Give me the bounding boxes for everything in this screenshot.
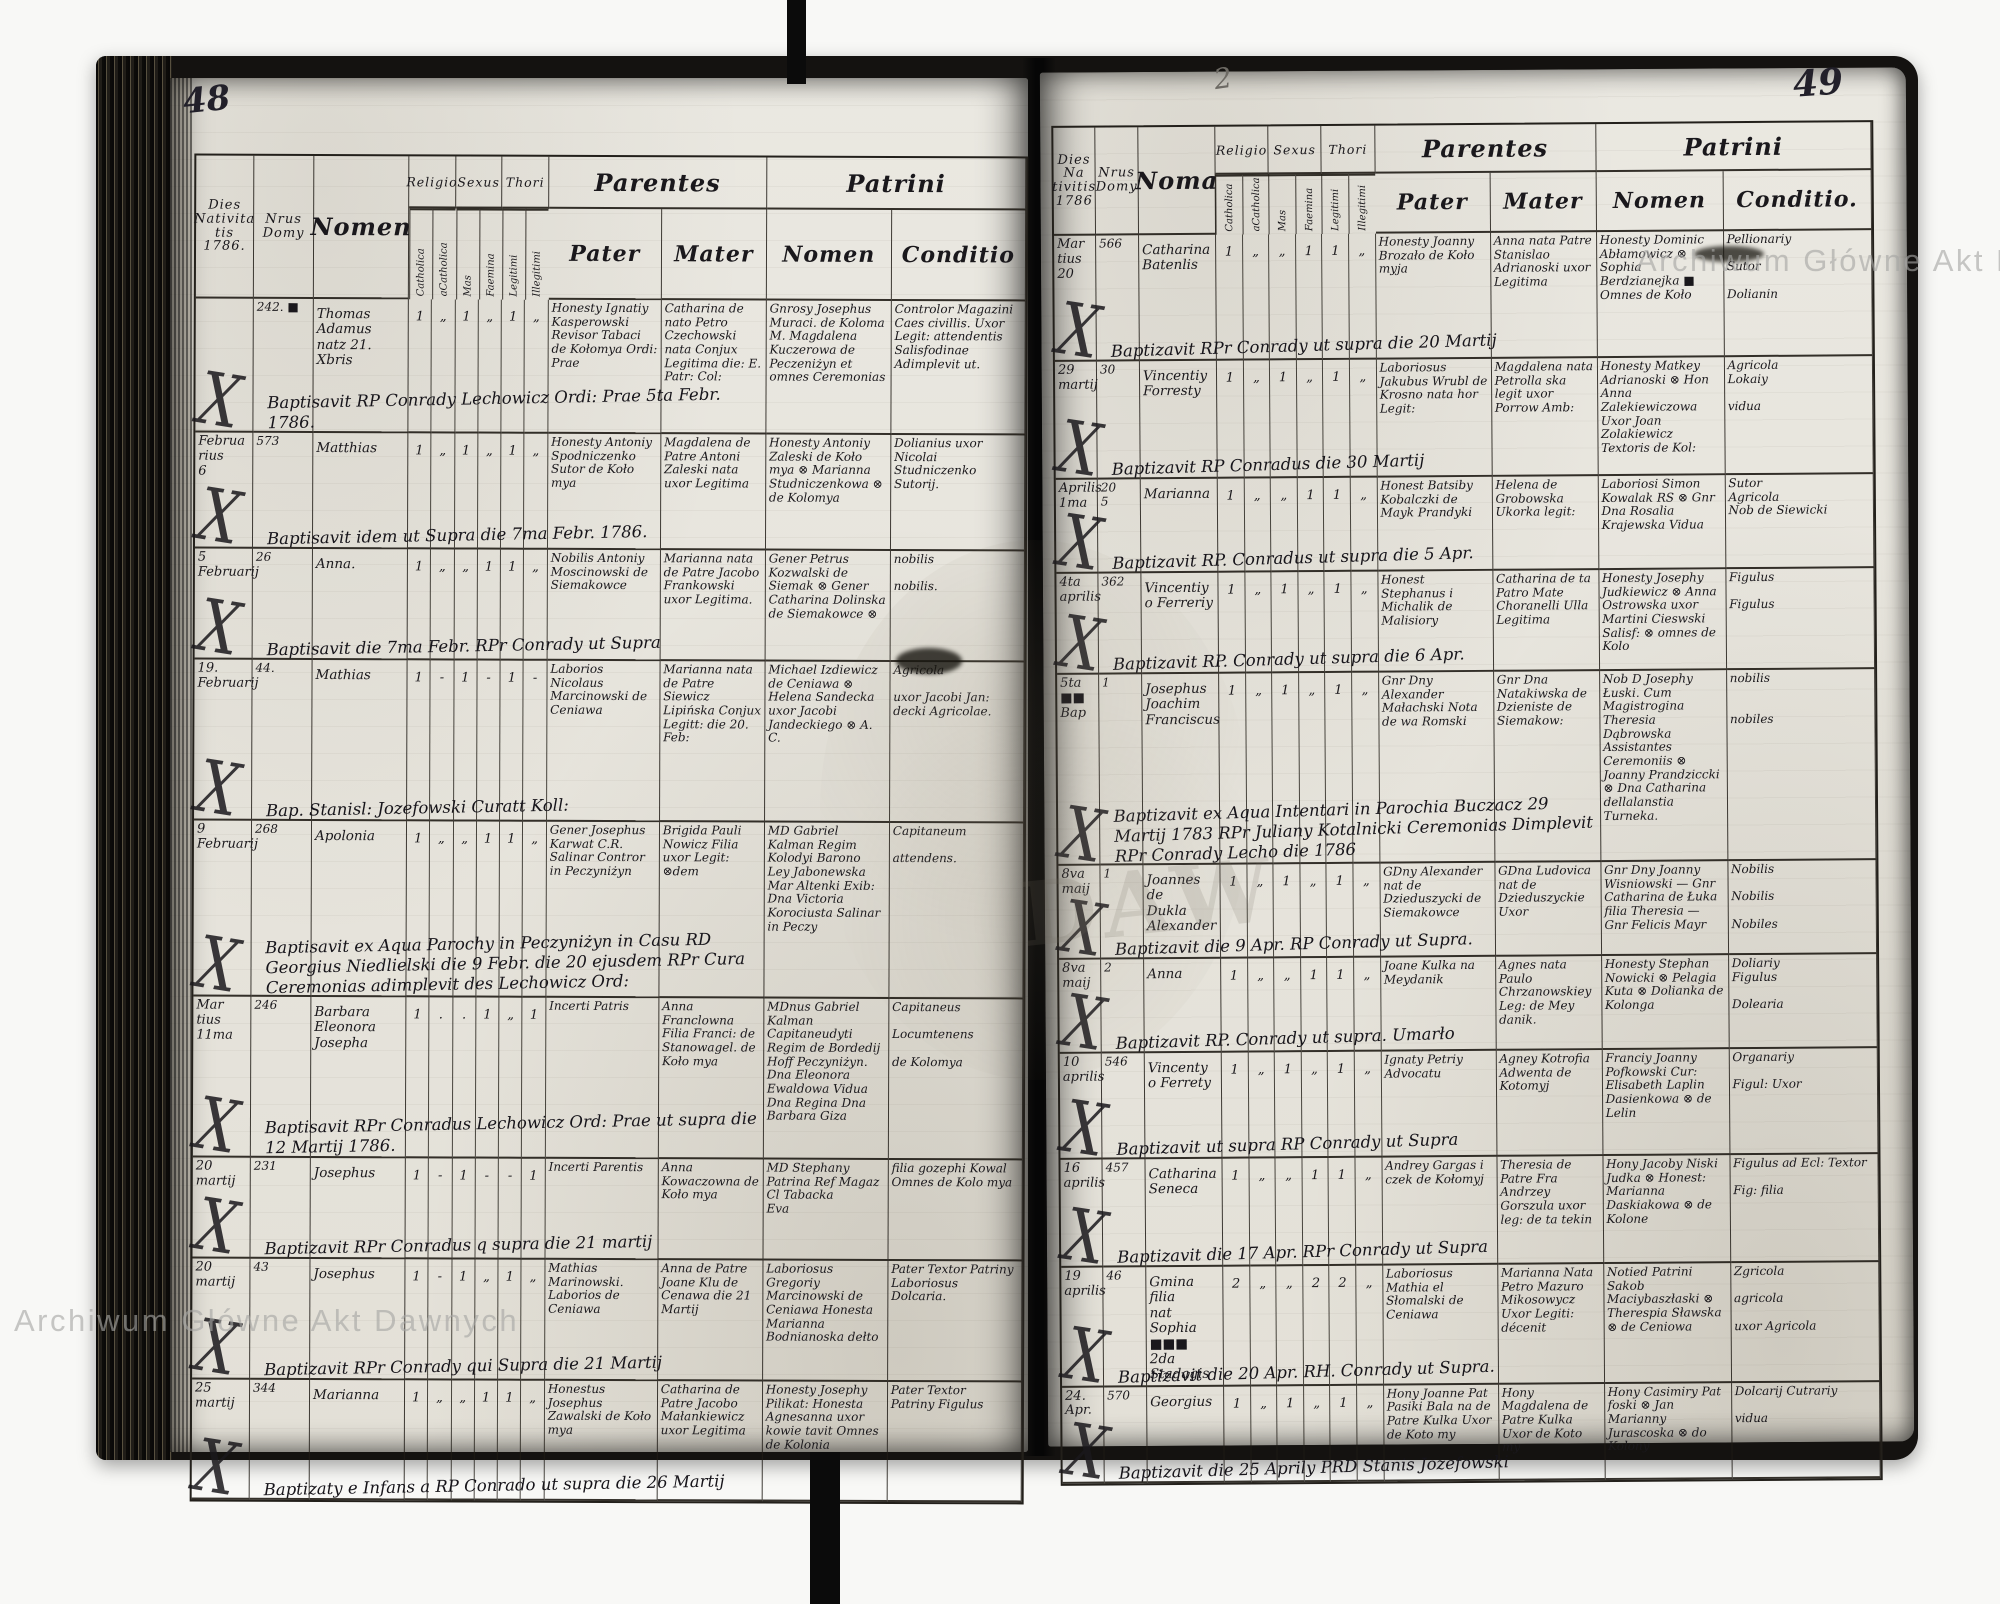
record-name: Mathias — [312, 660, 408, 821]
record-tick-5: „ — [524, 550, 548, 661]
record-dies: 5 FebruarijX — [195, 549, 253, 660]
record-tick-4: 1 — [500, 661, 524, 822]
record-patrini-nomen: Honesty Stephan Nowicki ⊗ Pelagia Kuta ⊗… — [1602, 955, 1730, 1050]
record-house-number: 546 — [1102, 1053, 1146, 1159]
header-conditio: Conditio — [892, 210, 1027, 301]
record-mater: Gnr Dna Natakiwska de Dzieniste de Siema… — [1494, 671, 1601, 863]
record-tick-1: - — [430, 660, 454, 821]
record-tick-4: - — [499, 1159, 523, 1260]
record-patrini-conditio: Dolianius uxor Nicolai Studniczenko Suto… — [891, 435, 1026, 551]
header-nomen: Noma — [1138, 127, 1216, 236]
check-x-mark: X — [1061, 1420, 1105, 1488]
check-x-mark: X — [192, 932, 252, 1002]
record-tick-2: „ — [451, 1380, 475, 1500]
record-tick-5: „ — [1354, 958, 1381, 1052]
record-patrini-conditio: Agricola Lokaiy vidua — [1724, 356, 1873, 475]
check-x-mark: X — [191, 1093, 251, 1163]
record-mater: Anna Franclowna Filia Franci: de Stanowa… — [659, 998, 765, 1159]
record-tick-2: 1 — [1272, 673, 1300, 864]
record-mater: Magdalena de Patre Antoni Zaleski nata u… — [661, 434, 766, 550]
check-x-mark: X — [1054, 417, 1098, 485]
record-pater: Gnr Dny Alexander Małachski Nota de wa R… — [1379, 672, 1495, 864]
record-dies: 20 martijX — [192, 1158, 250, 1259]
record-dies: 19. FebruarijX — [194, 660, 253, 821]
record-patrini-conditio: Controlor Magazini Caes civillis. Uxor L… — [891, 301, 1026, 435]
header-pater: Pater — [1375, 173, 1490, 234]
record-tick-5: „ — [523, 822, 547, 998]
record-pater: Laborios Nicolaus Marcinowski de Ceniawa — [547, 661, 661, 822]
record-mater: Anna Kowaczowna de Koło mya — [658, 1159, 763, 1260]
record-tick-2: „ — [1276, 1158, 1303, 1266]
record-tick-3: - — [477, 661, 501, 822]
ink-smudge — [896, 648, 962, 674]
record-name: Vincentiy Forresty — [1140, 361, 1218, 480]
record-tick-1: „ — [1243, 234, 1270, 360]
record-patrini-nomen: Hony Jacoby Niski Judka ⊗ Honest: Marian… — [1603, 1155, 1731, 1264]
record-patrini-conditio: Doliariy Figulus Dolearia — [1729, 954, 1878, 1049]
record-tick-4: 1 — [1329, 1158, 1356, 1266]
record-tick-0: 1 — [408, 433, 432, 549]
record-tick-2: „ — [1274, 958, 1301, 1052]
record-tick-2: 1 — [454, 660, 478, 821]
archive-watermark-bottom: Archiwum Główne Akt Dawnych — [14, 1303, 519, 1339]
record-mater: Brigida Pauli Nowicz Filia uxor Legit: ⊗… — [659, 822, 765, 998]
record-tick-1: „ — [431, 433, 455, 549]
record-mater: Hony Magdalena de Patre Kulka Uxor de Ko… — [1499, 1384, 1606, 1481]
record-patrini-nomen: Hony Casimiry Pat foski ⊗ Jan Marianny J… — [1605, 1383, 1733, 1480]
record-tick-0: 1 — [1218, 573, 1245, 674]
header-sub-3: Faemina — [479, 209, 503, 300]
record-tick-0: 1 — [405, 1158, 429, 1259]
header-patrini-nomen: Nomen — [1596, 171, 1723, 232]
record-pater: Honesty Antoniy Spodniczenko Sutor de Ko… — [548, 434, 661, 550]
record-tick-5: - — [524, 661, 548, 822]
record-tick-2: 1 — [455, 433, 479, 549]
record-mater: Catharina de ta Patro Mate Choranelli Ul… — [1493, 570, 1600, 672]
record-tick-1: „ — [1244, 360, 1271, 478]
record-house-number: 573 — [253, 433, 313, 549]
record-pater: Nobilis Antoniy Moscinowski de Siemakowc… — [547, 550, 660, 661]
record-tick-4: 2 — [1330, 1266, 1357, 1386]
record-tick-3: 1 — [1298, 478, 1325, 572]
record-tick-5: „ — [1355, 1158, 1382, 1266]
record-house-number: 231 — [250, 1158, 310, 1259]
record-pater: Honesty Joanny Brozało de Koło myja — [1376, 233, 1492, 360]
record-tick-3: „ — [478, 300, 502, 434]
record-tick-3: „ — [1298, 572, 1325, 673]
record-tick-3: 1 — [1302, 1158, 1329, 1266]
check-x-mark: X — [194, 368, 254, 438]
record-date: 19 aprilis — [1064, 1270, 1099, 1300]
record-tick-1: „ — [1248, 1052, 1275, 1158]
record-pater: GDny Alexander nat de Dzieduszycki de Si… — [1380, 863, 1496, 958]
record-tick-3: „ — [478, 434, 502, 550]
record-pater: Honest Stephanus i Michalik de Malisiory — [1378, 571, 1494, 673]
record-house-number: 268 — [251, 821, 312, 997]
record-pater: Laboriosus Mathia el Słomalski de Ceniaw… — [1383, 1265, 1499, 1385]
record-patrini-nomen: MD Stephany Patrina Ref Magaz Cl Tabacka… — [763, 1160, 888, 1261]
record-pater: Incerti Parentis — [545, 1159, 658, 1260]
record-mater: Helena de Grobowska Ukorka legit: — [1492, 476, 1599, 571]
header-dies: Dies Nativita tis 1786. — [196, 156, 254, 299]
record-tick-4: 1 — [501, 434, 525, 550]
record-tick-4: 1 — [502, 300, 526, 434]
record-tick-0: 2 — [1223, 1267, 1250, 1387]
record-tick-1: „ — [1246, 673, 1274, 864]
header-thori: Thori — [502, 157, 549, 209]
record-pater: Andrey Gargas i czek de Kołomyj — [1382, 1157, 1498, 1266]
record-name: Marianna — [1141, 479, 1219, 574]
record-name: Matthias — [313, 433, 408, 549]
page-number-left: 48 — [181, 78, 232, 123]
record-patrini-nomen: Notied Patrini Sakob Maciybaszłaski ⊗ Th… — [1604, 1263, 1732, 1384]
record-tick-1: . — [429, 997, 453, 1158]
header-sub-3: Faemina — [1295, 174, 1322, 234]
bookmark-ribbon-top — [787, 0, 806, 84]
header-sub-0: Catholica — [409, 208, 433, 299]
record-tick-5: „ — [521, 1381, 545, 1501]
record-patrini-nomen: Gnr Dny Joanny Wisniowski — Gnr Catharin… — [1601, 861, 1729, 956]
record-tick-3: „ — [1302, 1052, 1329, 1158]
record-mater: Agnes nata Paulo Chrzanowskiey Leg: de M… — [1496, 956, 1603, 1051]
record-dies: Februa rius 6X — [195, 433, 253, 549]
record-name: Barbara Eleonora Josepha — [311, 997, 407, 1158]
record-tick-4: 1 — [1327, 864, 1354, 958]
header-sexus: Sexus — [456, 156, 503, 208]
header-pater: Pater — [549, 209, 662, 300]
record-name: Catharina Seneca — [1145, 1159, 1223, 1268]
record-dies: 25 martijX — [192, 1380, 250, 1500]
record-mater: Anna nata Patre Stanislao Adrianoski uxo… — [1491, 232, 1598, 359]
record-tick-4: 1 — [1327, 958, 1354, 1052]
record-house-number: 46 — [1103, 1267, 1147, 1387]
header-parentes: Parentes — [549, 157, 767, 210]
record-patrini-conditio: Dolcarij Cutrariy vidua — [1732, 1382, 1881, 1479]
record-patrini-nomen: Franciy Joanny Pofkowski Cur: Elisabeth … — [1602, 1049, 1730, 1156]
record-dies: Mar tius 11maX — [193, 997, 252, 1158]
record-name: Georgius — [1147, 1386, 1225, 1483]
record-tick-3: 1 — [476, 998, 500, 1159]
record-tick-1: „ — [1250, 1266, 1277, 1386]
record-tick-2: 1 — [452, 1158, 476, 1259]
record-patrini-conditio: Pater Textor Patriny Laboriosus Dolcaria… — [888, 1261, 1023, 1382]
record-tick-5: „ — [1351, 478, 1378, 572]
header-conditio: Conditio. — [1723, 170, 1872, 231]
header-sub-2: Mas — [455, 208, 479, 299]
record-mater: Catharina de Patre Jacobo Małankiewicz u… — [657, 1381, 762, 1501]
record-date: 25 martij — [195, 1382, 246, 1412]
record-mater: Theresia de Patre Fra Andrzey Gorszula u… — [1497, 1156, 1604, 1265]
record-tick-2: „ — [1276, 1266, 1303, 1386]
header-nrus: Nrus Domy — [1095, 127, 1139, 235]
record-patrini-conditio: nobilis nobiles — [1727, 669, 1877, 861]
record-tick-4: 1 — [498, 1381, 522, 1501]
header-sub-5: Illegitimi — [525, 209, 549, 300]
record-date: 20 martij — [195, 1261, 246, 1291]
record-mater: Agney Kotrofia Adwenta de Kotomyj — [1496, 1050, 1603, 1157]
record-tick-5: „ — [524, 434, 548, 550]
record-tick-5: 1 — [522, 1159, 546, 1260]
record-name: Thomas Adamus natz 21. Xbris — [313, 299, 408, 433]
header-religio: Religio — [1215, 126, 1269, 174]
record-date: 19. Februarij — [197, 662, 248, 692]
record-mater: Magdalena nata Petrolla ska legit uxor P… — [1491, 358, 1598, 477]
check-x-mark: X — [1060, 1324, 1104, 1392]
record-date: 9 Februarij — [197, 823, 248, 853]
record-tick-2: „ — [1269, 234, 1296, 360]
record-tick-4: 1 — [500, 822, 524, 998]
header-sub-5: Illegitimi — [1349, 174, 1376, 234]
header-patrini: Patrini — [767, 158, 1026, 211]
record-patrini-nomen: Honesty Matkey Adrianoski ⊗ Hon Anna Zal… — [1597, 357, 1725, 476]
record-tick-3: 2 — [1303, 1266, 1330, 1386]
record-patrini-conditio: Pater Textor Patriny Figulus — [887, 1382, 1022, 1502]
record-patrini-conditio: Figulus Figulus — [1726, 568, 1875, 670]
header-nomen: Nomen — [314, 156, 409, 299]
record-patrini-nomen: Nob D Josephy Łuski. Cum Magistrogina Th… — [1600, 670, 1728, 862]
record-house-number: 344 — [250, 1380, 310, 1500]
record-tick-4: 1 — [1325, 572, 1352, 673]
header-sub-1: aCatholica — [432, 208, 456, 299]
record-name: Apolonia — [311, 821, 407, 997]
record-pater: Honesty Ignatiy Kasperowski Revisor Taba… — [548, 300, 661, 434]
record-tick-3: „ — [1304, 1386, 1331, 1482]
record-pater: Joane Kulka na Meydanik — [1381, 957, 1497, 1052]
record-mater: Anna de Patre Joane Klu de Cenawa die 21… — [658, 1260, 763, 1381]
header-mater: Mater — [1490, 172, 1596, 233]
record-tick-2: „ — [1271, 478, 1298, 572]
book-spine — [96, 56, 172, 1460]
record-tick-1: „ — [428, 1380, 452, 1500]
archive-watermark-top: Archiwum Główne Akt Dawnych — [1636, 243, 2000, 279]
record-tick-5: „ — [1355, 1052, 1382, 1158]
record-tick-0: 1 — [1221, 959, 1248, 1053]
header-nrus: Nrus Domy — [254, 156, 314, 299]
record-tick-3: 1 — [1296, 234, 1323, 360]
record-tick-2: . — [452, 997, 476, 1158]
record-tick-5: „ — [1357, 1385, 1384, 1481]
record-pater: Ignaty Petriy Advocatu — [1381, 1051, 1497, 1158]
record-patrini-conditio: Nobilis Nobilis Nobiles — [1728, 860, 1877, 955]
record-tick-0: 1 — [1224, 1386, 1251, 1482]
check-x-mark: X — [193, 484, 253, 554]
record-date: 29 martij — [1058, 364, 1093, 394]
record-tick-2: 1 — [1277, 1386, 1304, 1482]
record-dies: 24. Apr.X — [1062, 1387, 1105, 1483]
record-patrini-conditio: Sutor Agricola Nob de Siewicki — [1725, 474, 1874, 569]
header-religio: Religio — [409, 156, 456, 208]
record-tick-0: 1 — [1218, 479, 1245, 573]
record-tick-4: 1 — [1323, 360, 1350, 478]
record-tick-5: „ — [1350, 360, 1377, 478]
header-parentes: Parentes — [1375, 124, 1596, 174]
record-patrini-nomen: Laboriosi Simon Kowalak RS ⊗ Gnr Dna Ros… — [1598, 475, 1726, 570]
check-x-mark: X — [191, 1194, 251, 1264]
record-pater: Honest Batsiby Kobalczki de Mayk Prandyk… — [1377, 477, 1493, 572]
record-house-number: 44. — [252, 660, 313, 821]
record-name: Gmina filia nat Sophia ■■■ 2da Stadagis — [1146, 1267, 1224, 1387]
record-tick-3: 1 — [475, 1381, 499, 1501]
record-tick-1: „ — [1244, 478, 1271, 572]
record-name: Anna. — [313, 549, 408, 660]
header-patrini: Patrini — [1596, 122, 1872, 172]
record-tick-3: „ — [1299, 673, 1327, 864]
record-pater: Gener Josephus Karwat C.R. Salinar Contr… — [546, 822, 660, 998]
record-name: Marianna — [310, 1380, 405, 1500]
header-mater: Mater — [662, 209, 767, 300]
record-tick-3: 1 — [476, 822, 500, 998]
record-name: Josephus — [310, 1158, 405, 1259]
record-tick-2: 1 — [1275, 1052, 1302, 1158]
record-tick-0: 1 — [406, 997, 430, 1158]
record-tick-0: 1 — [1222, 1053, 1249, 1159]
record-house-number: 566 — [1096, 235, 1140, 361]
record-name: Vincenty o Ferrety — [1145, 1053, 1223, 1160]
record-tick-1: „ — [431, 549, 455, 660]
record-mater: Marianna nata de Patre Siewicz Lipińska … — [660, 661, 766, 822]
record-pater: Laboriosus Jakubus Wrubl de Krosno nata … — [1376, 359, 1492, 478]
record-pater: Hony Joanne Pat Pasiki Bala na de Patre … — [1384, 1384, 1500, 1481]
check-x-mark: X — [193, 595, 253, 665]
record-mater: Marianna nata de Patre Jacobo Frankowski… — [660, 550, 765, 661]
record-tick-5: „ — [1353, 864, 1380, 958]
record-house-number: 457 — [1102, 1159, 1146, 1267]
record-dies: Mar tius 20X — [1054, 236, 1097, 362]
page-edge-streaks — [170, 78, 192, 1452]
record-tick-4: 1 — [1325, 673, 1353, 864]
header-sub-4: Legitimi — [502, 209, 526, 300]
record-house-number: 246 — [251, 997, 312, 1158]
header-sub-2: Mas — [1269, 174, 1296, 234]
record-patrini-conditio: Figulus ad Ecl: Textor Fig: filia — [1730, 1154, 1879, 1263]
check-x-mark: X — [1053, 299, 1097, 367]
record-patrini-nomen: Honesty Josephy Judkiewicz ⊗ Anna Ostrow… — [1599, 569, 1727, 671]
record-tick-2: 1 — [455, 299, 479, 433]
check-x-mark: X — [192, 756, 252, 826]
record-tick-2: „ — [454, 549, 478, 660]
record-tick-5: „ — [1351, 572, 1378, 673]
record-tick-4: 1 — [1322, 234, 1349, 360]
header-patrini-nomen: Nomen — [767, 210, 892, 301]
record-dies: 16 aprilisX — [1060, 1160, 1103, 1268]
record-date: Mar tius 11ma — [196, 999, 247, 1044]
record-mater: Catharina de nato Petro Czechowski nata … — [661, 300, 766, 434]
check-x-mark: X — [190, 1435, 250, 1505]
record-patrini-conditio: filia gozephi Kowal Omnes de Kolo mya — [888, 1160, 1023, 1261]
record-dies: 29 martijX — [1055, 362, 1098, 480]
record-house-number: 570 — [1104, 1387, 1148, 1483]
record-house-number: 26 — [253, 549, 313, 660]
record-tick-5: „ — [522, 1260, 546, 1381]
record-patrini-nomen: Laboriosus Gregoriy Marcinowski de Cenia… — [763, 1261, 888, 1382]
record-date: 16 aprilis — [1063, 1162, 1098, 1192]
register-scan: DAW Dies Nativita tis 1786.Nrus DomyNome… — [0, 0, 2000, 1604]
record-patrini-nomen: MDnus Gabriel Kalman Capitaneudyti Regim… — [764, 999, 890, 1160]
record-tick-1: „ — [1248, 958, 1275, 1052]
record-patrini-conditio: Organariy Figul: Uxor — [1729, 1048, 1878, 1155]
record-tick-5: „ — [1356, 1266, 1383, 1386]
record-tick-0: 1 — [408, 299, 432, 433]
record-tick-1: „ — [1249, 1158, 1276, 1266]
check-x-mark: X — [1060, 1205, 1104, 1273]
record-pater: Honestus Josephus Zawalski de Koło mya — [544, 1381, 657, 1501]
record-dies: 19 aprilisX — [1061, 1268, 1104, 1388]
header-thori: Thori — [1322, 126, 1376, 174]
header-sub-4: Legitimi — [1322, 174, 1349, 234]
record-dies: X — [195, 299, 253, 433]
record-dies: 9 FebruarijX — [193, 821, 252, 997]
record-tick-1: „ — [1245, 572, 1272, 673]
record-mater: Marianna Nata Petro Mazuro Mikosowycz Ux… — [1498, 1264, 1605, 1384]
record-tick-0: 1 — [1222, 1159, 1249, 1267]
record-date: 5 Februarij — [198, 551, 249, 581]
record-patrini-nomen: Honesty Antoniy Zaleski de Koło mya ⊗ Ma… — [766, 435, 891, 551]
record-tick-5: „ — [1352, 673, 1380, 864]
record-mater: GDna Ludovica nat de Dzieduszyckie Uxor — [1495, 862, 1602, 957]
record-tick-1: - — [429, 1158, 453, 1259]
record-date: Mar tius 20 — [1057, 238, 1092, 283]
record-tick-3: „ — [1300, 864, 1327, 958]
record-tick-0: 1 — [407, 660, 431, 821]
record-pater: Incerti Patris — [546, 998, 660, 1159]
record-patrini-nomen: Gnrosy Josephus Muraci. de Koloma M. Mag… — [766, 301, 891, 435]
record-tick-4: 1 — [1330, 1385, 1357, 1481]
record-tick-4: „ — [499, 998, 523, 1159]
record-tick-1: „ — [432, 299, 456, 433]
header-dies: Dies Na tivitis 1786 — [1053, 128, 1096, 236]
record-tick-5: 1 — [522, 998, 546, 1159]
record-patrini-conditio: Zgricola agricola uxor Agricola — [1731, 1262, 1880, 1383]
header-sub-1: aCatholica — [1242, 174, 1269, 234]
record-tick-2: 1 — [1270, 360, 1297, 478]
header-sexus: Sexus — [1268, 126, 1322, 174]
record-pater: Mathias Marinowski. Laborios de Ceniawa — [545, 1260, 658, 1381]
record-tick-0: 1 — [1217, 361, 1244, 479]
record-tick-3: 1 — [1301, 958, 1328, 1052]
record-tick-3: „ — [1297, 360, 1324, 478]
header-sub-0: Catholica — [1216, 175, 1243, 235]
bookmark-ribbon-bottom — [810, 1452, 840, 1604]
record-tick-4: 1 — [1328, 1052, 1355, 1158]
record-tick-0: 1 — [406, 821, 430, 997]
record-house-number: 30 — [1097, 361, 1141, 479]
record-tick-0: 1 — [1216, 235, 1243, 361]
record-tick-2: „ — [453, 821, 477, 997]
record-house-number: 242. ■ — [253, 299, 313, 433]
record-tick-1: „ — [1251, 1386, 1278, 1482]
record-tick-4: 1 — [1324, 478, 1351, 572]
record-tick-0: 1 — [405, 1380, 429, 1500]
record-tick-3: - — [475, 1159, 499, 1260]
record-name: Catharina Batenlis — [1139, 235, 1217, 362]
record-tick-3: 1 — [477, 550, 501, 661]
record-tick-4: 1 — [501, 550, 525, 661]
record-tick-2: 1 — [1272, 572, 1299, 673]
record-tick-0: 1 — [408, 549, 432, 660]
record-tick-5: „ — [525, 300, 549, 434]
page-number-right: 49 — [1792, 60, 1845, 105]
record-tick-5: „ — [1349, 234, 1376, 360]
check-x-mark: X — [1059, 1097, 1103, 1165]
ghost-ornament-watermark — [820, 540, 1250, 1080]
record-tick-1: „ — [430, 821, 454, 997]
